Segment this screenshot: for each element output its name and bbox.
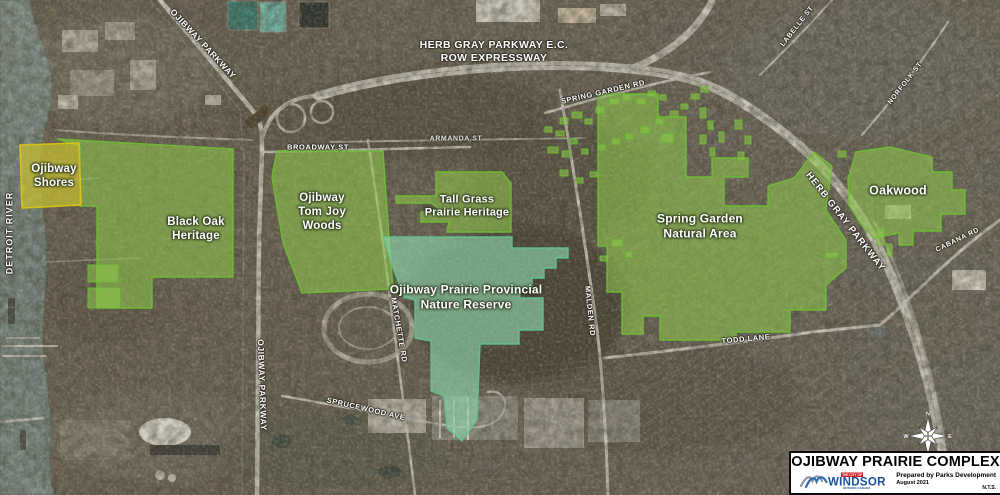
region-label-tall-grass-prairie-heritage: Tall GrassPrairie Heritage [425,194,510,221]
windsor-city-logo: THE CITY OF WINDSOR ONTARIO CANADA [797,471,897,490]
satellite-map-canvas [0,0,1000,495]
region-label-ojibway-tom-joy-woods: OjibwayTom JoyWoods [298,191,346,233]
prepared-by-text: Prepared by Parks Development [896,472,996,480]
compass-n: N [926,412,930,418]
map-title: OJIBWAY PRAIRIE COMPLEX [791,454,1000,470]
road-label-armanda-st: ARMANDA ST [430,136,483,145]
water-label-detroit-river: DETROIT RIVER [4,192,15,275]
logo-subtext: ONTARIO CANADA [843,486,871,490]
region-label-ojibway-shores: OjibwayShores [31,162,77,190]
compass-w: W [903,434,909,440]
region-label-black-oak-heritage: Black OakHeritage [167,215,224,243]
map-date: August 2021 [896,480,996,487]
road-label-broadway-st: BROADWAY ST [287,142,349,151]
region-label-spring-garden-natural-area: Spring GardenNatural Area [657,211,743,240]
region-label-oakwood: Oakwood [869,183,927,198]
ojibway-prairie-complex-map: OjibwayShores Black OakHeritage OjibwayT… [0,0,1000,495]
road-label-herb-gray-ec-row: HERB GRAY PARKWAY E.C.ROW EXPRESSWAY [420,39,569,65]
title-block: OJIBWAY PRAIRIE COMPLEX THE CITY OF WIND… [789,451,1000,495]
scale-nts: N.T.S. [982,485,996,491]
region-label-ojibway-prairie-provincial-nature-reserve: Ojibway Prairie ProvincialNature Reserve [390,282,543,311]
compass-e: E [948,434,952,440]
